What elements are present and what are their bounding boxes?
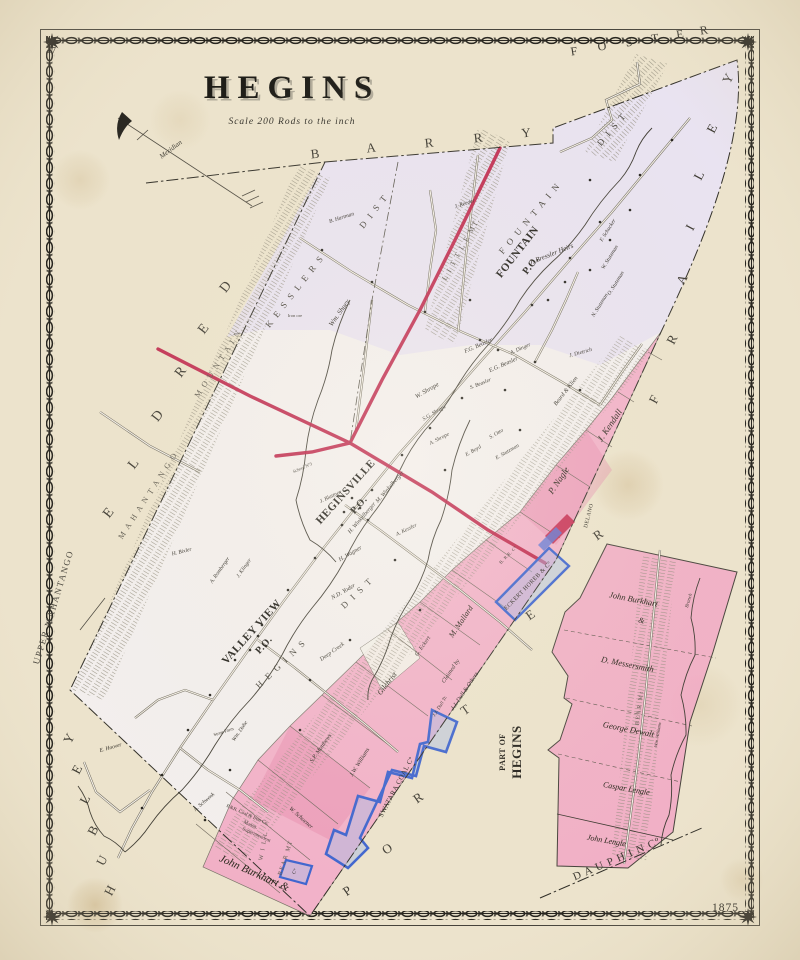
map-year: 1875 bbox=[712, 902, 739, 914]
house-marker bbox=[371, 281, 374, 284]
house-marker bbox=[569, 257, 572, 260]
map-scale-note: Scale 200 Rods to the inch bbox=[228, 117, 355, 127]
house-marker bbox=[401, 454, 404, 457]
post-office-label: PART OF bbox=[498, 733, 507, 770]
house-marker bbox=[229, 769, 232, 772]
house-marker bbox=[419, 609, 422, 612]
neighbor-township-letter: R bbox=[473, 130, 484, 146]
house-marker bbox=[371, 489, 374, 492]
house-marker bbox=[204, 819, 207, 822]
house-marker bbox=[349, 639, 352, 642]
house-marker bbox=[187, 729, 190, 732]
house-marker bbox=[589, 269, 592, 272]
house-marker bbox=[671, 139, 674, 142]
house-marker bbox=[609, 239, 612, 242]
house-marker bbox=[314, 557, 317, 560]
house-marker bbox=[249, 649, 252, 652]
map-title: HEGINS bbox=[204, 70, 380, 106]
house-marker bbox=[351, 497, 354, 500]
house-marker bbox=[519, 429, 522, 432]
border-star-ornament bbox=[43, 908, 61, 926]
house-marker bbox=[429, 427, 432, 430]
house-marker bbox=[579, 389, 582, 392]
neighbor-township-letter: R bbox=[424, 135, 435, 151]
house-marker bbox=[141, 807, 144, 810]
house-marker bbox=[461, 397, 464, 400]
house-marker bbox=[341, 524, 344, 527]
house-marker bbox=[287, 589, 290, 592]
house-marker bbox=[564, 281, 567, 284]
house-marker bbox=[161, 774, 164, 777]
house-marker bbox=[639, 174, 642, 177]
neighbor-township-letter: Y bbox=[521, 125, 533, 141]
neighbor-township-letter: B bbox=[310, 146, 321, 162]
house-marker bbox=[531, 304, 534, 307]
atlas-page: BARRYFOSTERYELIARFDERDLEYELBUHPORTERD A … bbox=[0, 0, 800, 960]
post-office-label: HEGINS bbox=[509, 725, 524, 779]
border-star-ornament bbox=[739, 908, 757, 926]
house-marker bbox=[209, 694, 212, 697]
border-star-ornament bbox=[739, 33, 757, 51]
house-marker bbox=[257, 635, 260, 638]
house-marker bbox=[547, 299, 550, 302]
house-marker bbox=[469, 299, 472, 302]
house-marker bbox=[444, 469, 447, 472]
house-marker bbox=[343, 511, 346, 514]
house-marker bbox=[534, 361, 537, 364]
house-marker bbox=[394, 559, 397, 562]
page-number: 47 bbox=[46, 46, 56, 57]
house-marker bbox=[309, 679, 312, 682]
house-marker bbox=[424, 311, 427, 314]
house-marker bbox=[497, 349, 500, 352]
house-marker bbox=[299, 729, 302, 732]
house-marker bbox=[504, 389, 507, 392]
house-marker bbox=[367, 519, 370, 522]
neighbor-township-letter: A bbox=[366, 140, 378, 156]
house-marker bbox=[321, 249, 324, 252]
house-marker bbox=[599, 221, 602, 224]
map-note-label: Iron ore bbox=[288, 313, 302, 318]
map-canvas: BARRYFOSTERYELIARFDERDLEYELBUHPORTERD A … bbox=[0, 0, 800, 960]
house-marker bbox=[629, 209, 632, 212]
house-marker bbox=[589, 179, 592, 182]
